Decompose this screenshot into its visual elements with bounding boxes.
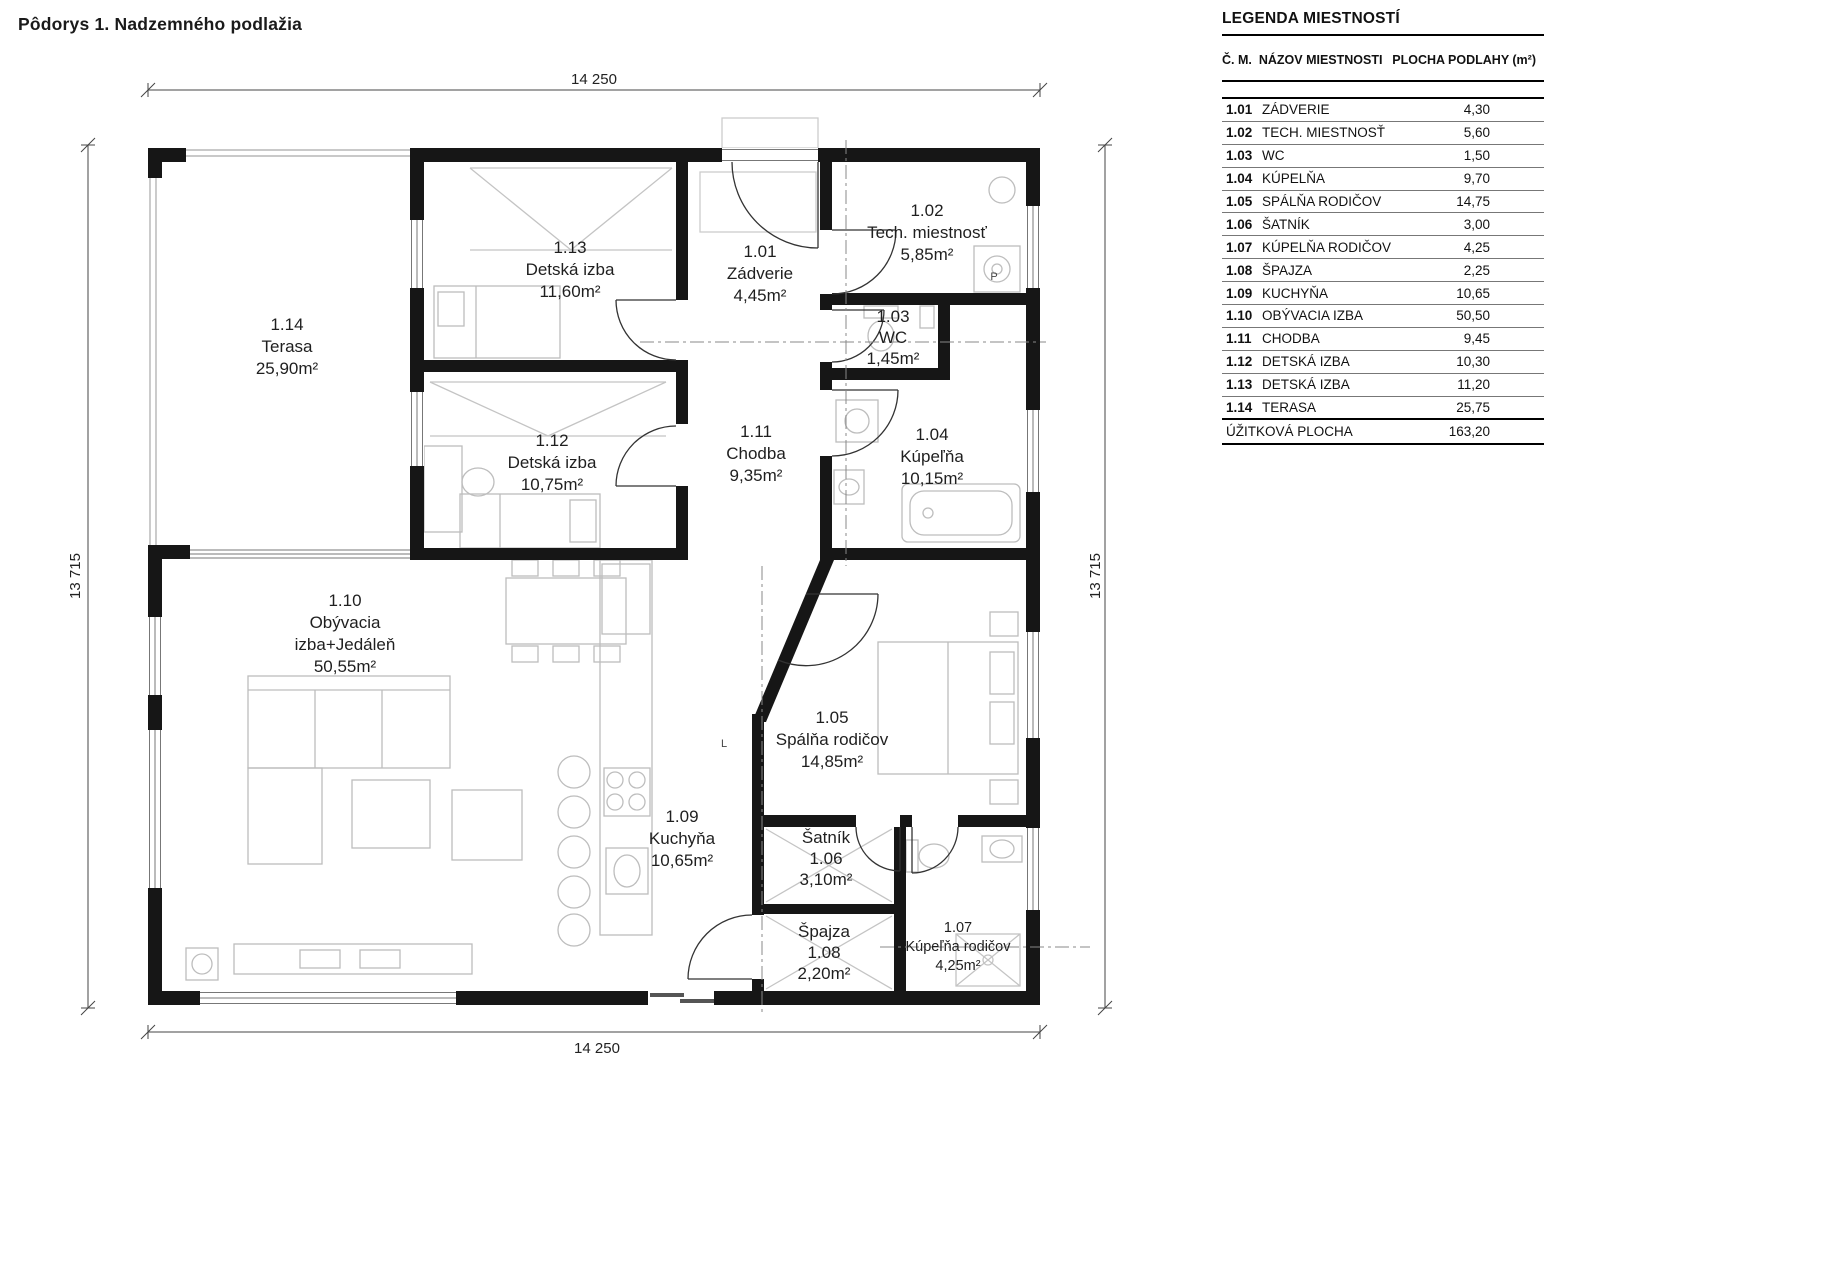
- legend-room-area: 9,70: [1424, 171, 1490, 186]
- boiler-tech: [989, 177, 1015, 203]
- legend-row: 1.12DETSKÁ IZBA10,30: [1222, 351, 1544, 374]
- sink-1-07: [982, 836, 1022, 862]
- legend-row: 1.01ZÁDVERIE4,30: [1222, 99, 1544, 122]
- sofa: [248, 676, 450, 864]
- legend-row: 1.14TERASA25,75: [1222, 397, 1544, 421]
- legend-room-name: KÚPELŇA RODIČOV: [1262, 240, 1424, 255]
- legend-room-name: WC: [1262, 148, 1424, 163]
- room-label-1-12: 1.12Detská izba10,75m²: [508, 431, 597, 494]
- section-lines: [640, 140, 1090, 1012]
- bar-stools: [558, 756, 590, 946]
- legend-row: 1.05SPÁLŇA RODIČOV14,75: [1222, 191, 1544, 214]
- room-label-1-09: 1.09Kuchyňa10,65m²: [649, 807, 716, 870]
- washer-1-04: [836, 400, 878, 442]
- room-label-1-01: 1.01Zádverie4,45m²: [727, 242, 793, 305]
- legend-room-area: 10,30: [1424, 354, 1490, 369]
- legend-row: 1.02TECH. MIESTNOSŤ5,60: [1222, 122, 1544, 145]
- room-label-1-13: 1.13Detská izba11,60m²: [526, 238, 615, 301]
- bed-1-05: [878, 612, 1018, 804]
- legend-room-name: ŠATNÍK: [1262, 217, 1424, 232]
- legend-room-name: CHODBA: [1262, 331, 1424, 346]
- legend-row: 1.11CHODBA9,45: [1222, 328, 1544, 351]
- bed-1-12: [460, 494, 600, 548]
- fireplace: [186, 948, 218, 980]
- tv-bench: [234, 944, 472, 974]
- room-label-1-11: 1.11Chodba9,35m²: [726, 422, 786, 485]
- legend-room-area: 25,75: [1424, 400, 1490, 415]
- legend-room-area: 1,50: [1424, 148, 1490, 163]
- legend-row: 1.10OBÝVACIA IZBA50,50: [1222, 305, 1544, 328]
- legend-title: LEGENDA MIESTNOSTÍ: [1222, 10, 1544, 36]
- legend-room-area: 50,50: [1424, 308, 1490, 323]
- legend-room-number: 1.12: [1222, 354, 1262, 369]
- floor-plan: 14 25014 25013 71513 715 1.14Terasa25,90…: [0, 0, 1823, 1288]
- child-room-1-13-door: [616, 300, 676, 360]
- entry-door: [732, 162, 818, 248]
- legend-row: 1.03WC1,50: [1222, 145, 1544, 168]
- legend: LEGENDA MIESTNOSTÍ Č. M. NÁZOV MIESTNOST…: [1222, 10, 1544, 445]
- legend-total-area: 163,20: [1424, 424, 1490, 439]
- legend-room-name: TECH. MIESTNOSŤ: [1262, 125, 1424, 140]
- legend-room-area: 11,20: [1424, 377, 1490, 392]
- legend-room-number: 1.05: [1222, 194, 1262, 209]
- entry-stoop: [722, 118, 818, 148]
- child-room-1-12-door: [616, 426, 676, 486]
- legend-room-area: 3,00: [1424, 217, 1490, 232]
- legend-room-name: SPÁLŇA RODIČOV: [1262, 194, 1424, 209]
- legend-col-area: PLOCHA PODLAHY (m²): [1392, 53, 1536, 67]
- wardrobe-1-12: [430, 382, 666, 436]
- plan-mark-l: L: [721, 738, 727, 750]
- legend-total-label: ÚŽITKOVÁ PLOCHA: [1222, 424, 1424, 439]
- legend-rows: 1.01ZÁDVERIE4,301.02TECH. MIESTNOSŤ5,601…: [1222, 99, 1544, 420]
- closet-door: [856, 827, 900, 871]
- pantry-door: [688, 915, 752, 979]
- legend-row: 1.07KÚPELŇA RODIČOV4,25: [1222, 236, 1544, 259]
- legend-col-name: NÁZOV MIESTNOSTI: [1259, 53, 1383, 67]
- room-label-1-04: 1.04Kúpeľňa10,15m²: [900, 425, 964, 488]
- legend-room-area: 14,75: [1424, 194, 1490, 209]
- legend-room-number: 1.06: [1222, 217, 1262, 232]
- legend-room-number: 1.10: [1222, 308, 1262, 323]
- legend-room-area: 2,25: [1424, 263, 1490, 278]
- legend-room-number: 1.03: [1222, 148, 1262, 163]
- legend-room-number: 1.14: [1222, 400, 1262, 415]
- legend-room-name: TERASA: [1262, 400, 1424, 415]
- legend-room-number: 1.13: [1222, 377, 1262, 392]
- dimension-label: 14 250: [574, 1040, 620, 1057]
- legend-room-name: DETSKÁ IZBA: [1262, 377, 1424, 392]
- legend-room-number: 1.02: [1222, 125, 1262, 140]
- room-label-1-06: Šatník1.063,10m²: [800, 828, 853, 889]
- dimension-label: 13 715: [1087, 553, 1104, 599]
- dimension-labels: 14 25014 25013 71513 715: [67, 71, 1104, 1057]
- legend-room-area: 4,30: [1424, 102, 1490, 117]
- legend-room-number: 1.08: [1222, 263, 1262, 278]
- plan-mark-p: P: [990, 271, 997, 283]
- room-label-1-10: 1.10Obývaciaizba+Jedáleň50,55m²: [295, 591, 396, 676]
- dining-table: [506, 560, 626, 662]
- legend-room-area: 10,65: [1424, 286, 1490, 301]
- dimension-label: 14 250: [571, 71, 617, 88]
- armchair: [452, 790, 522, 860]
- dimension-label: 13 715: [67, 553, 84, 599]
- room-label-1-05: 1.05Spálňa rodičov14,85m²: [776, 708, 889, 771]
- desk-1-12: [424, 446, 462, 532]
- legend-room-name: KÚPELŇA: [1262, 171, 1424, 186]
- legend-row: 1.13DETSKÁ IZBA11,20: [1222, 374, 1544, 397]
- legend-room-name: DETSKÁ IZBA: [1262, 354, 1424, 369]
- room-label-1-03: 1.03WC1,45m²: [867, 307, 920, 368]
- legend-room-number: 1.04: [1222, 171, 1262, 186]
- legend-room-number: 1.01: [1222, 102, 1262, 117]
- legend-total-row: ÚŽITKOVÁ PLOCHA 163,20: [1222, 420, 1544, 445]
- legend-room-number: 1.07: [1222, 240, 1262, 255]
- legend-row: 1.08ŠPAJZA2,25: [1222, 259, 1544, 282]
- legend-row: 1.06ŠATNÍK3,00: [1222, 213, 1544, 236]
- legend-room-area: 9,45: [1424, 331, 1490, 346]
- room-label-1-14: 1.14Terasa25,90m²: [256, 315, 319, 378]
- legend-room-area: 5,60: [1424, 125, 1490, 140]
- legend-room-name: ZÁDVERIE: [1262, 102, 1424, 117]
- legend-rule: [1222, 80, 1544, 82]
- bathtub-1-04: [902, 484, 1020, 542]
- chair-1-12: [462, 468, 494, 496]
- legend-header: Č. M. NÁZOV MIESTNOSTI PLOCHA PODLAHY (m…: [1222, 53, 1544, 67]
- legend-row: 1.04KÚPELŇA9,70: [1222, 168, 1544, 191]
- sink-1-04: [834, 470, 864, 504]
- coffee-table: [352, 780, 430, 848]
- legend-room-name: KUCHYŇA: [1262, 286, 1424, 301]
- legend-room-name: ŠPAJZA: [1262, 263, 1424, 278]
- legend-room-number: 1.11: [1222, 331, 1262, 346]
- legend-row: 1.09KUCHYŇA10,65: [1222, 282, 1544, 305]
- legend-room-name: OBÝVACIA IZBA: [1262, 308, 1424, 323]
- parents-bath-door: [912, 827, 958, 873]
- legend-col-number: Č. M.: [1222, 53, 1252, 67]
- room-label-1-08: Špajza1.082,20m²: [798, 922, 851, 983]
- sink-wc: [920, 306, 934, 328]
- legend-room-area: 4,25: [1424, 240, 1490, 255]
- legend-room-number: 1.09: [1222, 286, 1262, 301]
- room-label-1-02: 1.02Tech. miestnosť5,85m²: [867, 201, 987, 264]
- washer-tech: [974, 246, 1020, 292]
